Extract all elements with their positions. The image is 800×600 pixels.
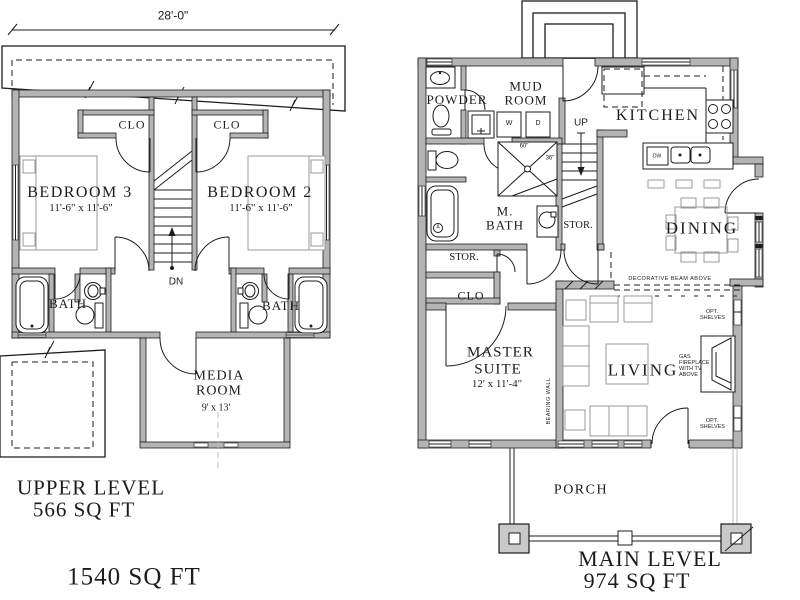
powder-toilet [433, 105, 449, 127]
beam-note: DECORATIVE BEAM ABOVE [628, 276, 711, 282]
shower-width-label: 60" [520, 144, 529, 151]
upper-level-area: 566 SQ FT [33, 498, 135, 521]
floor-plan-sheet: 28'-0" CLO CLO BEDROOM 3 11'-6" x 11'-6"… [0, 0, 800, 600]
sofa-left [563, 326, 589, 386]
tub-marker: A [436, 225, 439, 231]
stor-hall-door [497, 254, 515, 272]
media-room-label: MEDIA ROOM [192, 369, 246, 400]
decorative-beam [614, 285, 740, 296]
dimension-line-28ft [8, 24, 339, 35]
fireplace-note: GAS FIREPLACE WITH TV ABOVE [679, 354, 709, 378]
bedroom2-size: 11'-6" x 11'-6" [229, 202, 292, 214]
shower-depth-label: 36" [546, 156, 555, 163]
side-table [566, 300, 586, 320]
master-bath-label: M. BATH [485, 205, 525, 234]
up-label: UP [574, 118, 588, 129]
kitchen-label: KITCHEN [616, 107, 700, 125]
sofa-bottom [590, 406, 647, 436]
dishwasher-label: DW [653, 154, 661, 160]
mbath-door-hall [527, 250, 561, 284]
front-door-opening [651, 439, 689, 449]
bath-left-label: BATH [49, 297, 87, 311]
porch-label: PORCH [554, 482, 608, 497]
chimney-stoop [522, 1, 637, 58]
toilet-left [95, 303, 103, 328]
living-label: LIVING [608, 362, 679, 381]
dn-label: DN [169, 277, 183, 288]
stor-hall-label: STOR. [449, 252, 478, 264]
bath-right-label: BATH [262, 299, 300, 313]
stove [706, 100, 733, 133]
bar-stool [676, 180, 692, 188]
side-table [565, 410, 585, 430]
bar-stool [648, 180, 664, 188]
bedroom3-size: 11'-6" x 11'-6" [49, 202, 112, 214]
lower-roof-outline [0, 341, 105, 457]
dining-side-door [725, 179, 759, 213]
powder-label: POWDER [427, 93, 488, 107]
closet-right-label: CLO [214, 118, 241, 131]
closet-main-label: CLO [458, 289, 485, 302]
main-level-area: 974 SQ FT [584, 569, 691, 593]
closet-left-label: CLO [119, 118, 146, 131]
media-room-size: 9' x 13' [202, 403, 231, 414]
bearing-wall-note: BEARING WALL [546, 377, 552, 424]
upper-stairs [154, 151, 192, 270]
kitchen-fixtures [602, 66, 733, 188]
master-suite-size: 12' x 11'-4" [472, 378, 522, 390]
chair [590, 296, 618, 322]
bedroom2-label: BEDROOM 2 [207, 184, 313, 202]
front-door [652, 408, 688, 444]
refrigerator [602, 67, 644, 94]
opt-shelves-bottom: OPT. SHELVES [700, 418, 724, 430]
mud-room-label: MUD ROOM [504, 80, 548, 109]
roof-outline [2, 46, 345, 111]
stor-stairs-door [564, 250, 598, 284]
bedroom3-label: BEDROOM 3 [27, 184, 133, 202]
dryer-label: D [535, 120, 540, 128]
master-suite-label: MASTER SUITE [467, 345, 529, 378]
upper-level-title: UPPER LEVEL [17, 476, 165, 499]
porch [499, 448, 753, 553]
washer-label: W [506, 120, 513, 128]
back-door [563, 66, 598, 101]
dining-label: DINING [666, 220, 738, 239]
upper-level-plan [0, 24, 345, 472]
total-area: 1540 SQ FT [67, 563, 201, 591]
chair [624, 296, 652, 322]
mbath-toilet [428, 151, 436, 170]
opt-shelves-top: OPT. SHELVES [700, 309, 724, 321]
toilet-right [240, 303, 248, 328]
bar-stool [704, 180, 720, 188]
dimension-label: 28'-0" [158, 9, 189, 22]
stor-under-stairs-label: STOR. [563, 220, 592, 232]
main-stairs [562, 133, 597, 207]
